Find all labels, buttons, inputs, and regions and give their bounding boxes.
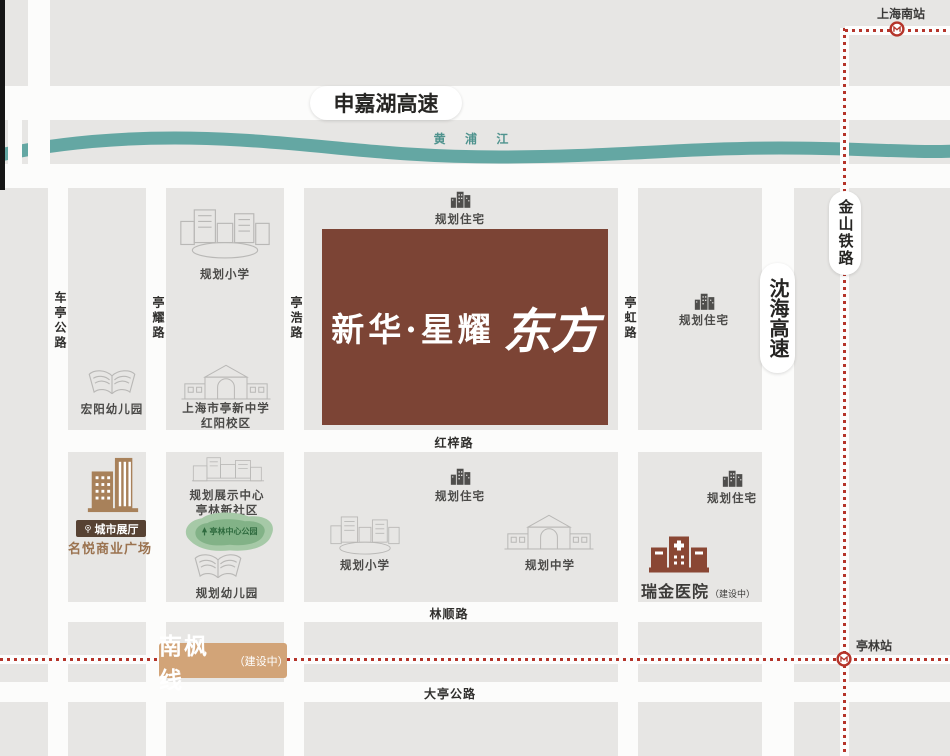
tingxin-middle-school-label: 上海市亭新中学 红阳校区 bbox=[171, 402, 281, 432]
tingxin-school-line1: 上海市亭新中学 bbox=[171, 402, 281, 417]
planned-residence-label: 规划住宅 bbox=[428, 490, 492, 505]
tinghong-road-label: 亭虹路 bbox=[622, 296, 639, 341]
road-shenhai bbox=[762, 164, 794, 756]
hongyang-kindergarten-label: 宏阳幼儿园 bbox=[60, 403, 164, 418]
mingyue-plaza-label: 名悦商业广场 bbox=[50, 538, 170, 557]
planned-residence-label: 规划住宅 bbox=[672, 314, 736, 329]
location-pin-icon bbox=[84, 524, 92, 534]
road-shenjiahu-band bbox=[0, 86, 950, 120]
open-book-sketch-icon bbox=[86, 366, 138, 407]
linshun-road-label: 林顺路 bbox=[419, 605, 479, 622]
planned-kindergarten-label: 规划幼儿园 bbox=[175, 587, 279, 602]
ruijin-hospital-label: 瑞金医院 （建设中） bbox=[638, 578, 758, 602]
tinghao-road-label: 亭浩路 bbox=[288, 296, 305, 341]
city-exhibition-hall-badge: 城市展厅 bbox=[76, 520, 146, 537]
jinshan-railway-line-vertical bbox=[840, 28, 849, 756]
road-topleft-b bbox=[8, 118, 22, 188]
property-block: 新华·星耀 东方 bbox=[322, 229, 608, 425]
planned-residence-label: 规划住宅 bbox=[700, 492, 764, 507]
metro-station-icon bbox=[889, 21, 905, 37]
open-book-sketch-icon bbox=[192, 550, 244, 591]
tree-icon bbox=[201, 527, 208, 536]
nanfeng-line-name: 南枫线 bbox=[159, 627, 232, 695]
planned-residence-label: 规划住宅 bbox=[428, 213, 492, 228]
jinshan-railway-pill: 金山铁路 bbox=[829, 191, 861, 275]
ruijin-hospital-name: 瑞金医院 bbox=[641, 578, 709, 602]
hongzi-road-label: 红梓路 bbox=[424, 434, 484, 451]
nanfeng-line-status: （建设中） bbox=[234, 653, 287, 669]
shenjiahu-expressway-pill: 申嘉湖高速 bbox=[310, 86, 462, 120]
metro-station-icon bbox=[836, 651, 852, 667]
road-tinghao bbox=[284, 185, 304, 756]
planned-primary-school-label: 规划小学 bbox=[333, 559, 397, 574]
tingyao-road-label: 亭耀路 bbox=[150, 296, 167, 341]
tingxin-school-line2: 红阳校区 bbox=[171, 417, 281, 432]
residence-icon bbox=[450, 189, 472, 208]
commercial-towers-icon bbox=[84, 453, 142, 522]
nanfeng-line-dashes bbox=[0, 658, 950, 661]
shanghai-south-station-label: 上海南站 bbox=[866, 5, 936, 22]
planned-primary-school-label: 规划小学 bbox=[193, 268, 257, 283]
road-topleft-a bbox=[28, 0, 50, 188]
hospital-icon bbox=[647, 531, 711, 581]
project-name-main: 新华·星耀 bbox=[331, 303, 495, 351]
nanfeng-line-badge: 南枫线 （建设中） bbox=[159, 643, 287, 678]
map-edge-strip bbox=[0, 0, 5, 190]
residence-icon bbox=[694, 291, 716, 310]
city-exhibition-hall-text: 城市展厅 bbox=[95, 521, 139, 537]
shenhai-expressway-pill: 沈海高速 bbox=[760, 263, 795, 373]
ruijin-hospital-status: （建设中） bbox=[710, 587, 755, 600]
planned-middle-school-label: 规划中学 bbox=[518, 559, 582, 574]
location-map: 申嘉湖高速 沈海高速 金山铁路 车亭公路 亭耀路 亭浩路 亭虹路 红梓路 林顺路… bbox=[0, 0, 950, 756]
jinshan-railway-dashes bbox=[843, 28, 846, 756]
dating-road-label: 大亭公路 bbox=[412, 685, 488, 702]
road-under-river bbox=[0, 164, 950, 188]
road-tinghong bbox=[618, 185, 638, 756]
residence-icon bbox=[722, 468, 744, 487]
residence-icon bbox=[450, 466, 472, 485]
project-name-accent: 东方 bbox=[503, 292, 599, 362]
tinglin-central-park-label: 亭林中心公园 bbox=[186, 526, 272, 537]
nanfeng-metro-line bbox=[0, 655, 950, 664]
cheting-road-label: 车亭公路 bbox=[52, 291, 69, 351]
park-name-text: 亭林中心公园 bbox=[210, 526, 258, 537]
exhibition-center-line1: 规划展示中心 bbox=[177, 489, 277, 504]
huangpu-river-label: 黄 浦 江 bbox=[420, 130, 530, 147]
tinglin-station-label: 亭林站 bbox=[850, 637, 898, 654]
road-cheting bbox=[48, 185, 68, 756]
school-gate-sketch-icon bbox=[494, 512, 604, 559]
school-buildings-sketch-icon bbox=[317, 511, 413, 562]
school-buildings-sketch-icon bbox=[177, 202, 273, 267]
